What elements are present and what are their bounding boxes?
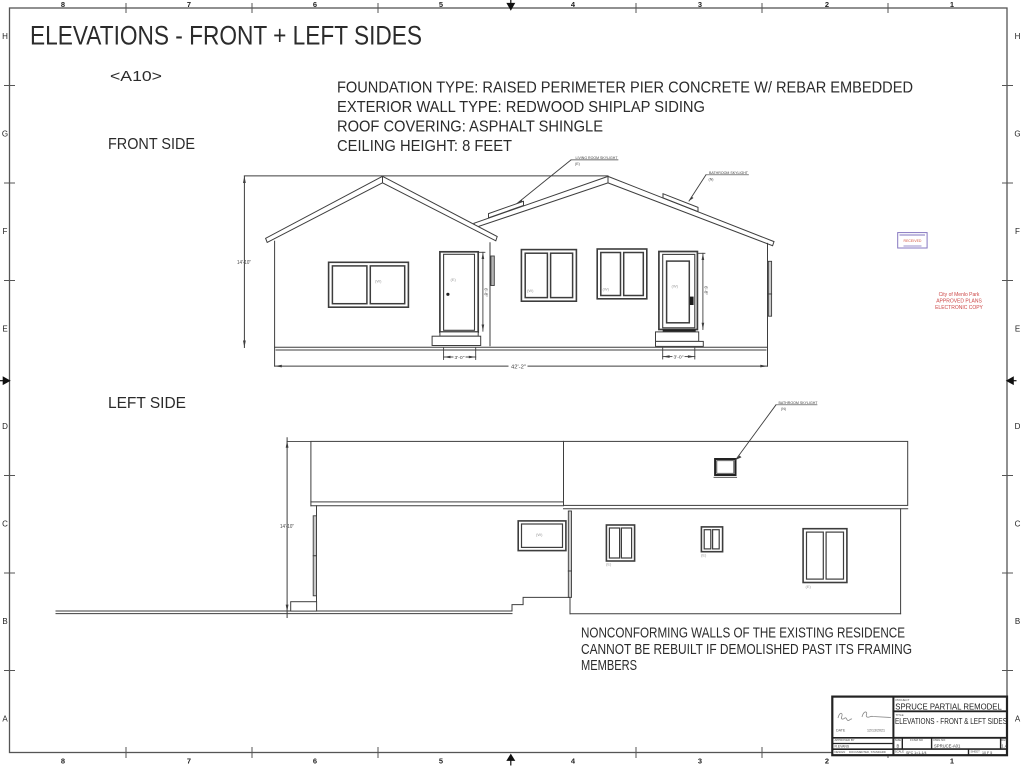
svg-text:LEFT SIDE: LEFT SIDE xyxy=(108,395,186,412)
svg-text:FCSM NO: FCSM NO xyxy=(910,738,924,742)
svg-text:1.4: 1.4 xyxy=(1001,743,1007,748)
svg-text:6'-8": 6'-8" xyxy=(484,288,489,297)
svg-text:(E): (E) xyxy=(806,584,812,589)
svg-text:(W): (W) xyxy=(603,287,610,292)
svg-text:CEILING HEIGHT: 8 FEET: CEILING HEIGHT: 8 FEET xyxy=(337,138,512,155)
svg-text:(E): (E) xyxy=(701,553,707,558)
svg-text:(E): (E) xyxy=(451,277,457,282)
svg-text:(W): (W) xyxy=(527,288,534,293)
svg-text:ELEVATIONS - FRONT & LEFT SIDE: ELEVATIONS - FRONT & LEFT SIDES xyxy=(895,717,1007,726)
svg-text:DESIGN: DESIGN xyxy=(835,750,846,754)
svg-text:E: E xyxy=(1015,325,1020,334)
svg-text:BATHROOM SKYLIGHT: BATHROOM SKYLIGHT xyxy=(709,171,749,175)
svg-text:12/13/2021: 12/13/2021 xyxy=(867,729,885,733)
svg-text:City of Menlo Park: City of Menlo Park xyxy=(939,292,980,298)
svg-text:1: 1 xyxy=(950,0,954,9)
svg-text:H: H xyxy=(2,32,8,41)
svg-text:SCALE: SCALE xyxy=(895,750,904,754)
svg-text:CANNOT BE REBUILT IF DEMOLISHE: CANNOT BE REBUILT IF DEMOLISHED PAST ITS… xyxy=(581,641,912,658)
svg-text:D: D xyxy=(2,422,8,431)
svg-text:1: 1 xyxy=(950,757,954,766)
svg-text:5: 5 xyxy=(439,0,443,9)
svg-text:8: 8 xyxy=(61,0,65,9)
svg-text:(N): (N) xyxy=(709,177,714,181)
svg-text:ROOF COVERING: ASPHALT SHINGLE: ROOF COVERING: ASPHALT SHINGLE xyxy=(337,119,603,136)
svg-text:D: D xyxy=(1015,422,1021,431)
svg-text:(N): (N) xyxy=(781,407,786,411)
svg-text:DATE: DATE xyxy=(836,729,846,733)
svg-text:B: B xyxy=(2,617,7,626)
svg-text:<A10>: <A10> xyxy=(110,68,162,85)
svg-text:3: 3 xyxy=(698,0,702,9)
svg-text:42'-2": 42'-2" xyxy=(511,364,526,370)
svg-text:(E): (E) xyxy=(575,162,580,166)
svg-text:G: G xyxy=(2,130,8,139)
svg-text:BATHROOM SKYLIGHT: BATHROOM SKYLIGHT xyxy=(779,401,819,405)
svg-text:G: G xyxy=(1014,130,1020,139)
svg-text:6: 6 xyxy=(313,0,317,9)
svg-text:SFC 1=1-1/4: SFC 1=1-1/4 xyxy=(906,751,926,755)
svg-text:ELEVATIONS - FRONT + LEFT SIDE: ELEVATIONS - FRONT + LEFT SIDES xyxy=(30,21,422,51)
svg-text:3'-0": 3'-0" xyxy=(455,355,465,360)
svg-text:C: C xyxy=(2,520,8,529)
svg-text:B: B xyxy=(1015,617,1020,626)
svg-text:NONCONFORMING WALLS OF THE EXI: NONCONFORMING WALLS OF THE EXISTING RESI… xyxy=(581,625,905,642)
svg-text:R.EVANS: R.EVANS xyxy=(835,745,850,749)
svg-text:REV: REV xyxy=(1001,738,1007,742)
svg-text:14'-10": 14'-10" xyxy=(280,524,294,530)
svg-text:DOCUMENTED, STANDARD: DOCUMENTED, STANDARD xyxy=(849,750,886,754)
svg-text:ELECTRONIC COPY: ELECTRONIC COPY xyxy=(935,305,983,311)
svg-text:(E): (E) xyxy=(606,562,612,567)
svg-text:2: 2 xyxy=(825,757,829,766)
svg-text:RECEIVED: RECEIVED xyxy=(904,239,922,243)
svg-text:SIZE: SIZE xyxy=(895,738,901,742)
svg-text:APPROVED PLANS: APPROVED PLANS xyxy=(936,299,982,305)
svg-text:6: 6 xyxy=(313,757,317,766)
svg-text:3: 3 xyxy=(698,757,702,766)
svg-text:8: 8 xyxy=(61,757,65,766)
svg-text:DWG NO: DWG NO xyxy=(934,738,947,742)
svg-text:F: F xyxy=(3,227,8,236)
svg-text:5: 5 xyxy=(439,757,443,766)
svg-text:2: 2 xyxy=(825,0,829,9)
svg-text:7: 7 xyxy=(187,757,191,766)
svg-text:3'-0": 3'-0" xyxy=(674,354,684,359)
svg-text:4: 4 xyxy=(571,757,576,766)
svg-text:B: B xyxy=(897,743,900,748)
svg-text:LIVING ROOM SKYLIGHT: LIVING ROOM SKYLIGHT xyxy=(576,156,619,160)
svg-text:(W): (W) xyxy=(536,532,543,537)
svg-text:C: C xyxy=(1015,520,1021,529)
svg-text:(W): (W) xyxy=(375,279,382,284)
svg-text:EXTERIOR WALL TYPE: REDWOOD SH: EXTERIOR WALL TYPE: REDWOOD SHIPLAP SIDI… xyxy=(337,99,705,116)
svg-text:SPRUCE PARTIAL REMODEL: SPRUCE PARTIAL REMODEL xyxy=(895,702,1002,712)
svg-text:APPROVED BY: APPROVED BY xyxy=(835,738,855,742)
svg-text:6'-8": 6'-8" xyxy=(704,286,709,295)
svg-text:14'-10": 14'-10" xyxy=(237,260,251,266)
svg-text:SHEET: SHEET xyxy=(971,750,981,754)
svg-text:A: A xyxy=(2,715,8,724)
svg-text:MEMBERS: MEMBERS xyxy=(581,657,637,674)
svg-text:H: H xyxy=(1015,32,1021,41)
svg-text:10 F 5: 10 F 5 xyxy=(982,751,992,755)
svg-text:(W): (W) xyxy=(672,284,679,289)
svg-text:FOUNDATION TYPE: RAISED PERIME: FOUNDATION TYPE: RAISED PERIMETER PIER C… xyxy=(337,80,913,97)
svg-text:FRONT SIDE: FRONT SIDE xyxy=(108,136,195,153)
svg-text:F: F xyxy=(1015,227,1020,236)
svg-text:A: A xyxy=(1015,715,1021,724)
svg-text:E: E xyxy=(2,325,7,334)
svg-text:7: 7 xyxy=(187,0,191,9)
svg-text:SPRUCE-A01: SPRUCE-A01 xyxy=(934,744,961,749)
